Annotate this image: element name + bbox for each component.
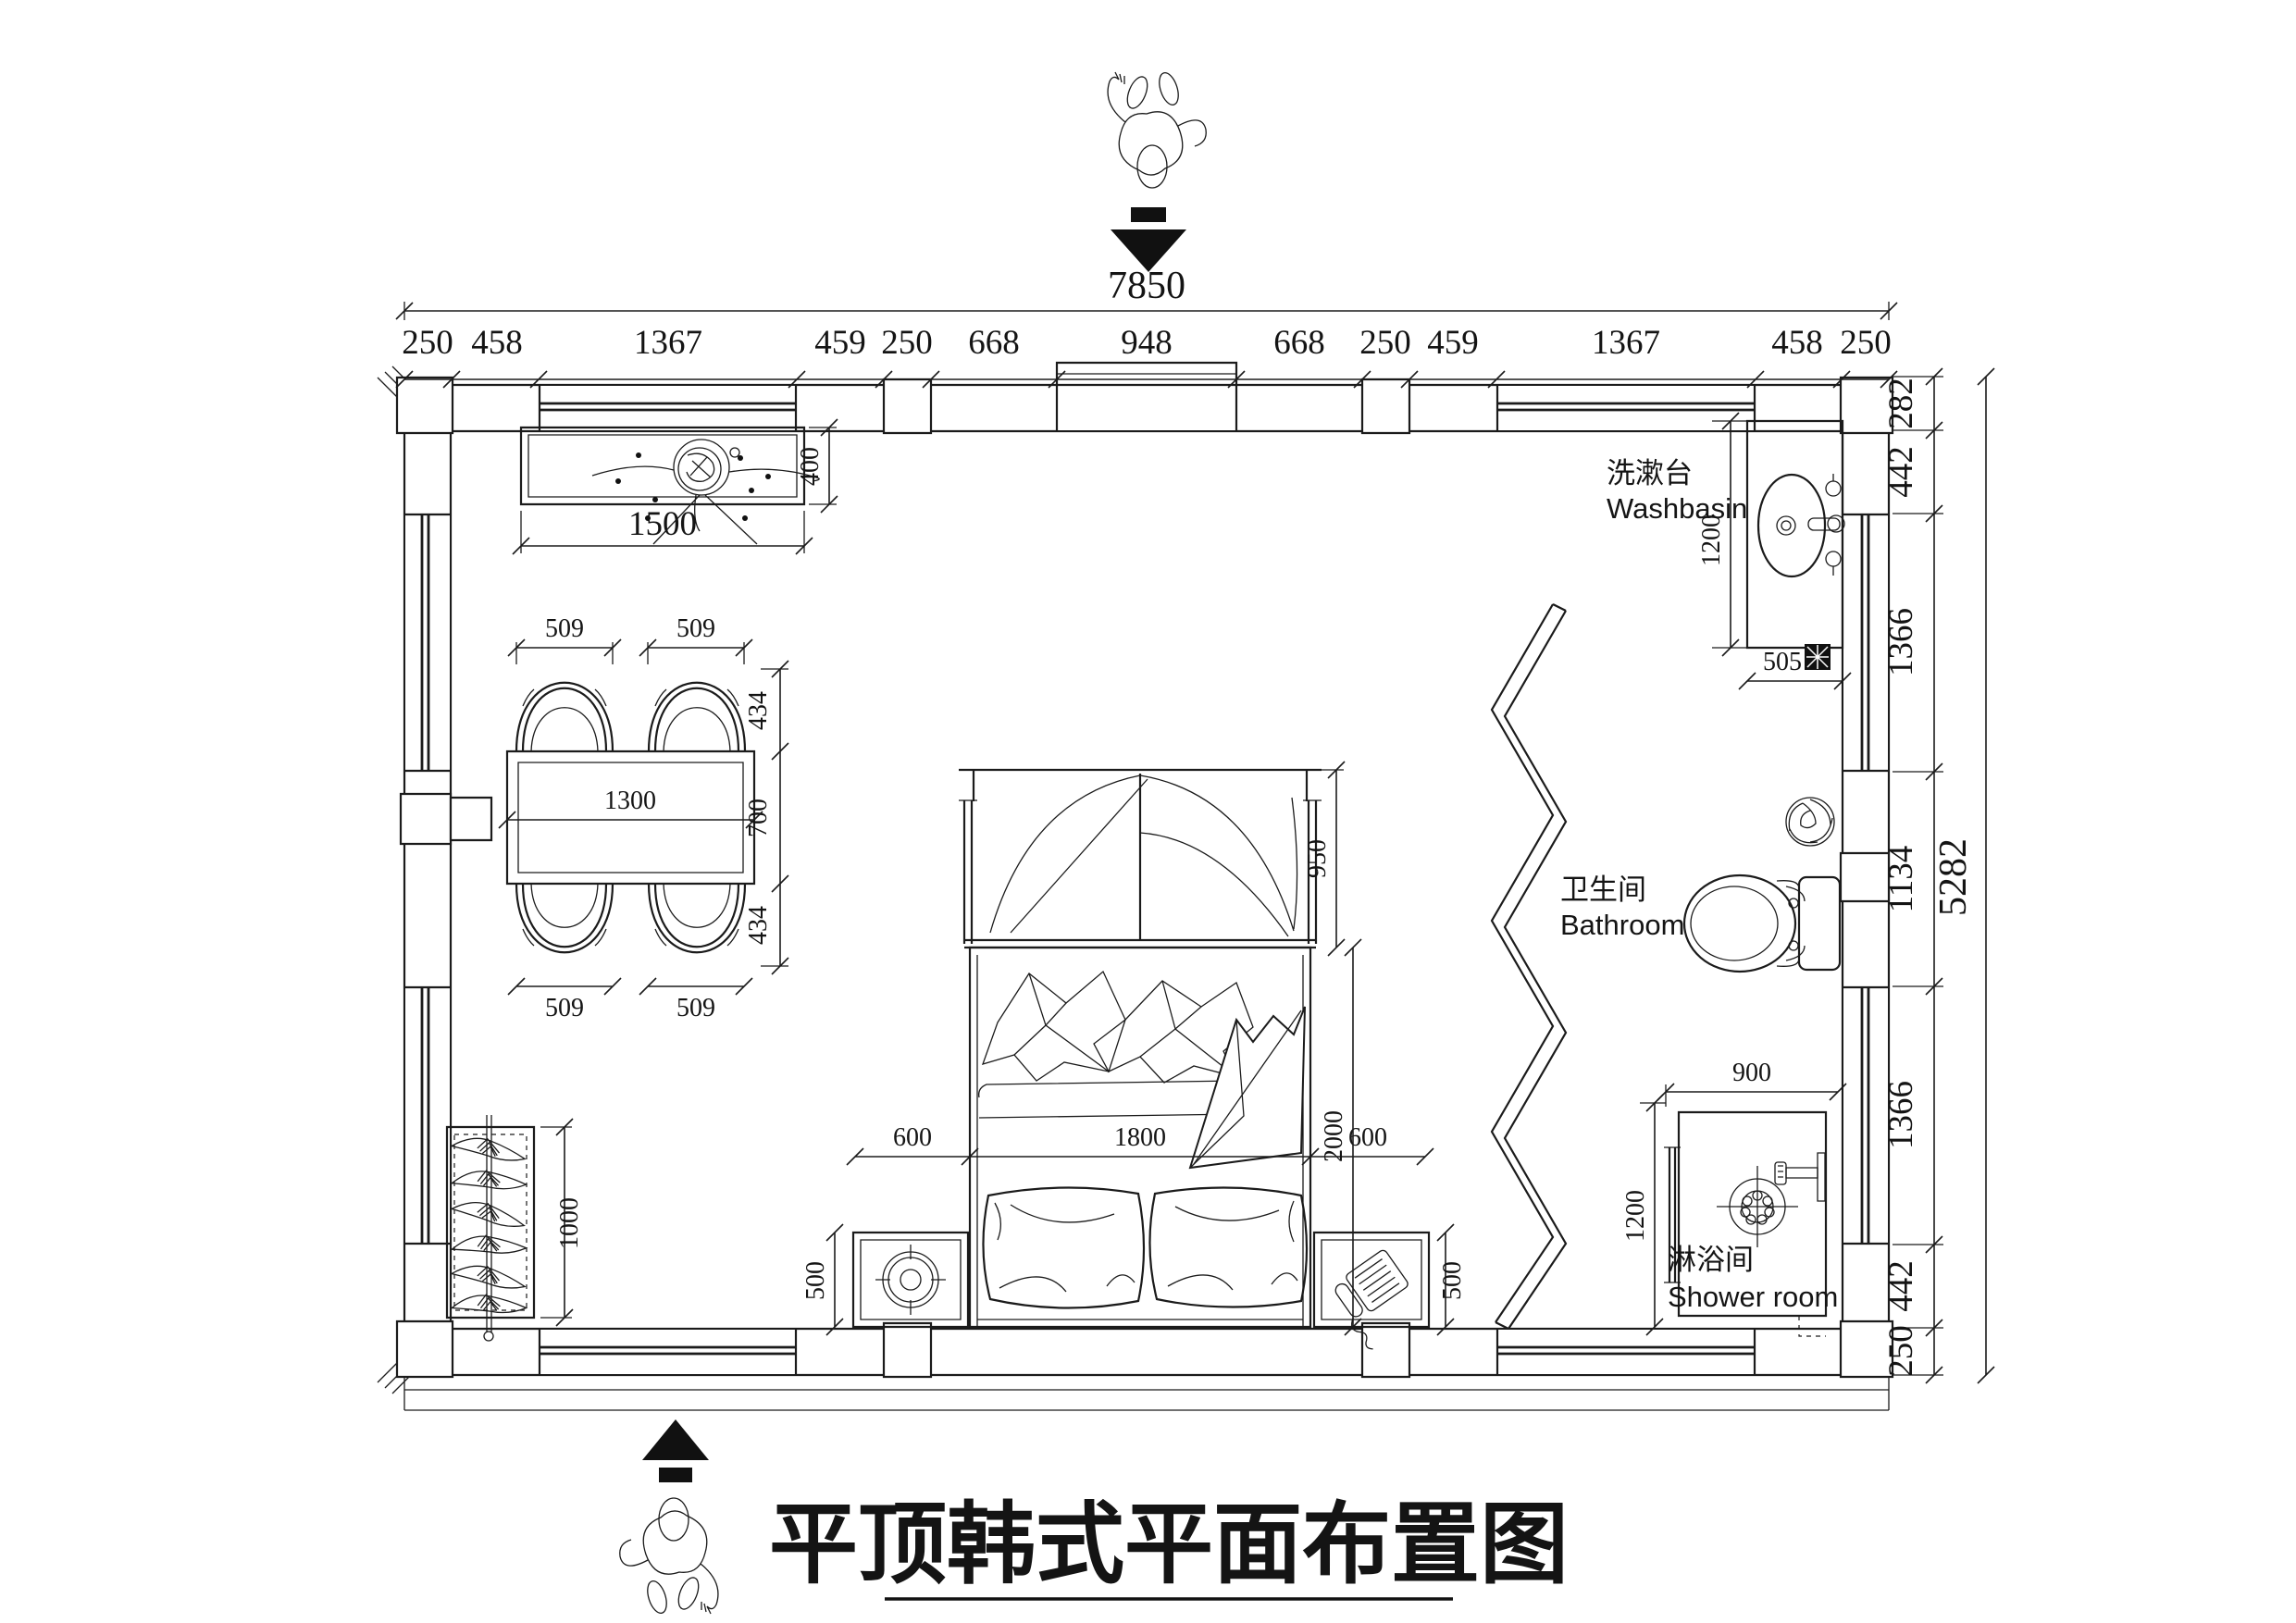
dining-set: 509 509 509 509 434 700 434 1300 [499, 614, 788, 1022]
wardrobe-dim: 1000 [540, 1119, 584, 1326]
label-bathroom-en: Bathroom [1560, 909, 1684, 941]
dim-top-6: 948 [1121, 324, 1173, 362]
label-washbasin-zh: 洗漱台 [1607, 457, 1693, 489]
pillows [983, 1187, 1307, 1307]
hanger-icon [451, 1136, 527, 1162]
dim-top-0: 250 [402, 324, 453, 362]
dim-right-2: 1366 [1882, 608, 1920, 676]
hanger-icon [451, 1292, 527, 1318]
dim-washbasin-width: 505 [1763, 648, 1802, 676]
dim-bed-length: 2000 [1320, 1110, 1348, 1162]
toilet-icon [1684, 875, 1840, 972]
dim-right-0: 282 [1882, 378, 1920, 429]
dim-top-8: 250 [1359, 324, 1411, 362]
dim-right-4: 1366 [1882, 1081, 1920, 1149]
label-washbasin-en: Washbasin [1607, 492, 1747, 525]
dim-table-depth: 700 [744, 799, 773, 837]
console-dims: 1500 400 [513, 419, 838, 554]
page-title: 平顶韩式平面布置图 [769, 1495, 1569, 1594]
washbasin-icon [1758, 474, 1844, 576]
throw-pillows [983, 972, 1253, 1083]
dim-bed-width: 1800 [1114, 1123, 1166, 1152]
washbasin-area: 1200 505 洗漱台 Washbasin [1607, 413, 1851, 689]
hanger-icon [451, 1199, 527, 1229]
folding-screen [1492, 604, 1566, 1329]
wardrobe: 1000 [447, 1115, 584, 1341]
dim-top-9: 459 [1427, 324, 1479, 362]
window-top-left [540, 385, 796, 431]
dining-chair [649, 884, 745, 952]
shower-area: 900 1200 淋浴间 Shower room [1621, 1059, 1846, 1336]
label-shower-en: Shower room [1668, 1281, 1838, 1313]
dim-chair-d: 434 [744, 906, 773, 945]
dim-top-10: 1367 [1592, 324, 1660, 362]
floor-plan-drawing: 1500 400 509 509 509 5 [0, 0, 2296, 1623]
floor-plan-page: 1500 400 509 509 509 5 [0, 0, 2296, 1623]
dining-chair [516, 884, 613, 952]
hanger-icon [451, 1232, 527, 1258]
dim-bed-canopy: 950 [1303, 839, 1332, 878]
dim-chair-w: 509 [545, 614, 584, 643]
window-bottom-right [1497, 1329, 1755, 1375]
console-table: 1500 400 [513, 419, 838, 554]
drawing-title: 平顶韩式平面布置图 [769, 1495, 1569, 1599]
dim-overall-height: 5282 [1932, 838, 1975, 916]
dining-chair [649, 683, 745, 751]
plant-icon [592, 440, 819, 544]
dim-top-3: 459 [814, 324, 866, 362]
window-left-upper [404, 514, 451, 771]
entry-arrow-bar [659, 1468, 692, 1482]
dining-dims: 509 509 509 509 434 700 434 1300 [499, 614, 788, 1022]
dim-overall-width: 7850 [1108, 265, 1185, 307]
entry-opening [1057, 363, 1236, 431]
dim-top-11: 458 [1771, 324, 1823, 362]
dim-bed-side: 600 [1348, 1123, 1387, 1152]
dim-top-1: 458 [471, 324, 523, 362]
dim-wardrobe: 1000 [555, 1197, 584, 1249]
window-left-lower [404, 987, 451, 1244]
label-bathroom-zh: 卫生间 [1560, 873, 1646, 906]
dim-table-width: 1300 [604, 787, 656, 815]
bathroom-area: 卫生间 Bathroom [1560, 798, 1840, 972]
dim-console-width: 1500 [628, 505, 697, 543]
dim-bed-side: 600 [893, 1123, 932, 1152]
floor-drain-icon [1805, 644, 1831, 670]
hanger-icon [451, 1264, 527, 1290]
dining-chair [516, 683, 613, 751]
dim-console-depth: 400 [796, 447, 825, 486]
hanger-icon [451, 1168, 526, 1193]
dim-top-7: 668 [1273, 324, 1325, 362]
fan-drain-icon [1786, 798, 1834, 846]
arrow-up-icon [642, 1419, 709, 1460]
entry-figure-bottom [620, 1419, 718, 1616]
window-bottom-left [540, 1329, 796, 1375]
label-shower-zh: 淋浴间 [1668, 1244, 1754, 1276]
dim-top-2: 1367 [634, 324, 702, 362]
dim-nightstand: 500 [801, 1261, 830, 1300]
dim-top-4: 250 [881, 324, 933, 362]
dim-top-12: 250 [1840, 324, 1892, 362]
dim-right-1: 442 [1882, 446, 1920, 498]
dim-chair-w: 509 [676, 994, 715, 1022]
window-top-right [1497, 385, 1755, 431]
nightstand-left: 500 [801, 1224, 968, 1335]
person-icon [1108, 70, 1206, 188]
dim-top-5: 668 [968, 324, 1020, 362]
bed: 600 1800 600 2000 950 [847, 762, 1433, 1335]
dim-right-5: 442 [1882, 1260, 1920, 1312]
columns [397, 378, 1893, 1377]
dim-chair-d: 434 [744, 691, 773, 730]
entry-arrow-bar [1131, 207, 1166, 222]
lamp-icon [875, 1245, 946, 1315]
right-dimensions: 282 442 1366 1134 1366 442 250 5282 [1882, 368, 1994, 1383]
dim-shower-depth: 1200 [1621, 1190, 1650, 1242]
person-icon [620, 1498, 718, 1616]
entry-figure-top [1108, 70, 1206, 272]
dim-right-6: 250 [1882, 1325, 1920, 1377]
dim-shower-width: 900 [1732, 1059, 1771, 1087]
dim-right-3: 1134 [1882, 846, 1920, 913]
dim-chair-w: 509 [545, 994, 584, 1022]
dim-chair-w: 509 [676, 614, 715, 643]
dim-nightstand: 500 [1438, 1261, 1467, 1300]
